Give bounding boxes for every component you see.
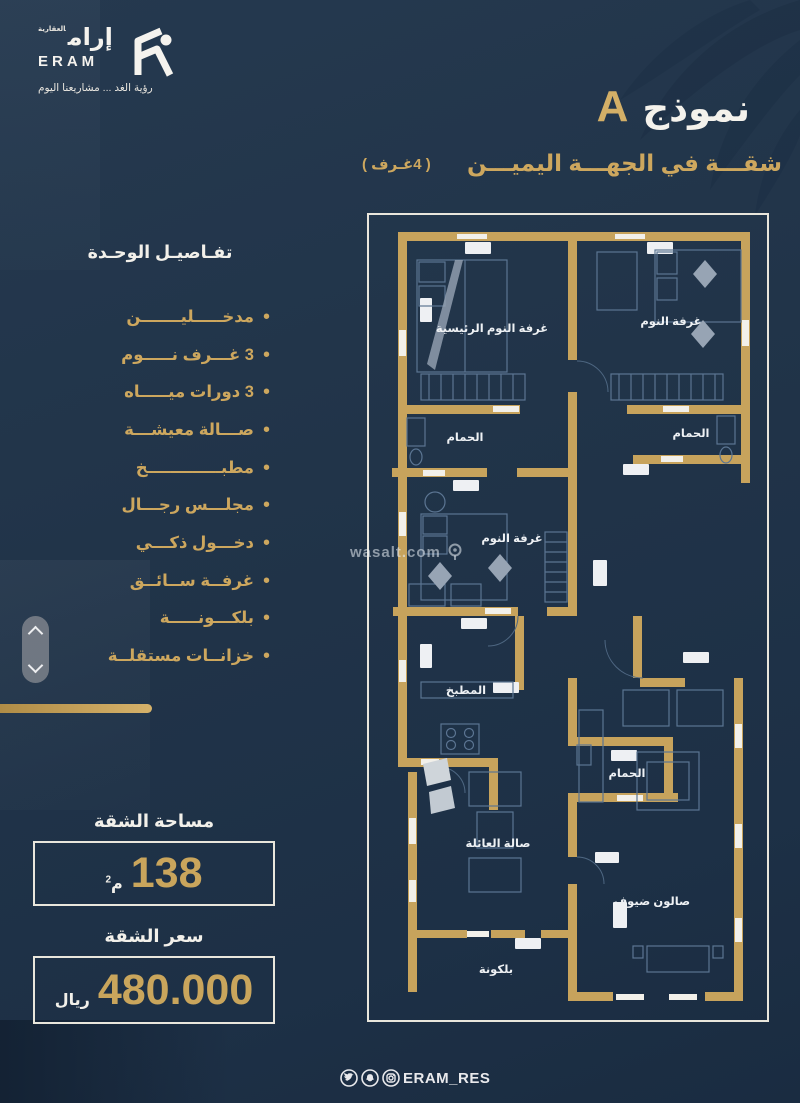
- price-box: ريال 480.000: [33, 956, 275, 1024]
- location-pin-icon: [447, 543, 463, 561]
- subtitle-text: شقـــة في الجهـــة اليميـــن: [467, 150, 782, 177]
- bullet-icon: •: [263, 608, 270, 628]
- details-list: •مدخـــــليـــــــن •3 غـــرف نـــــوم •…: [20, 298, 270, 675]
- background-shadow-bottom-left: [0, 1020, 230, 1103]
- list-item: •مدخـــــليـــــــن: [20, 298, 270, 336]
- eram-monogram-icon: [129, 26, 177, 78]
- area-value: 138: [131, 852, 203, 895]
- bullet-icon: •: [263, 646, 270, 666]
- bullet-icon: •: [263, 458, 270, 478]
- floorplan-svg: غرفة النوم الرئيسية غرفة النوم الحمام ال…: [365, 212, 785, 1024]
- brand-logo: إرامالعقارية ERAM رؤية الغد ... مشاريعنا…: [38, 26, 188, 94]
- bullet-icon: •: [263, 533, 270, 553]
- list-item: •3 غـــرف نـــــوم: [20, 336, 270, 374]
- room-label-guest-salon: صالون ضيوف: [614, 896, 690, 909]
- area-label: مساحة الشقة: [33, 811, 275, 832]
- scroll-widget[interactable]: [22, 616, 49, 683]
- room-label-family-hall: صالة العائلة: [466, 838, 531, 850]
- floorplan-walls: [392, 232, 750, 1001]
- list-item: •بلكـــونـــــة: [20, 600, 270, 638]
- subtitle-rooms-note: ( 4غـرف ): [362, 155, 431, 173]
- bullet-icon: •: [263, 307, 270, 327]
- list-item: •صـــالة معيشـــة: [20, 411, 270, 449]
- flyer-page: إرامالعقارية ERAM رؤية الغد ... مشاريعنا…: [0, 0, 800, 1103]
- floorplan: غرفة النوم الرئيسية غرفة النوم الحمام ال…: [365, 212, 785, 1024]
- area-box: 2م 138: [33, 841, 275, 906]
- bullet-icon: •: [263, 495, 270, 515]
- room-label-bathroom-2: الحمام: [672, 428, 709, 440]
- room-label-master-bedroom: غرفة النوم الرئيسية: [436, 323, 548, 336]
- scroll-up-icon[interactable]: [28, 626, 44, 642]
- room-label-bathroom-1: الحمام: [446, 432, 483, 444]
- gold-divider: [0, 704, 152, 713]
- page-subtitle: شقـــة في الجهـــة اليميـــن ( 4غـرف ): [362, 150, 782, 177]
- logo-arabic-tag: العقارية: [38, 26, 66, 33]
- bullet-icon: •: [263, 571, 270, 591]
- twitter-icon: [340, 1069, 358, 1087]
- area-unit: 2م: [105, 874, 122, 894]
- watermark-text: wasalt.com: [350, 544, 441, 561]
- title-model-letter: A: [597, 82, 629, 132]
- watermark: wasalt.com: [350, 543, 463, 561]
- room-label-kitchen: المطبخ: [446, 685, 486, 697]
- instagram-icon: [382, 1069, 400, 1087]
- room-label-balcony: بلكونة: [479, 964, 513, 977]
- room-label-bathroom-3: الحمام: [608, 768, 645, 780]
- list-item: •مطبـــــــــــــخ: [20, 449, 270, 487]
- price-label: سعر الشقة: [33, 926, 275, 947]
- list-item: •خزانــات مستقلــة: [20, 637, 270, 675]
- room-label-bedroom-2: غرفة النوم: [640, 316, 701, 329]
- price-unit: ريال: [55, 990, 90, 1010]
- social-footer: ERAM_RES: [340, 1069, 492, 1087]
- list-item: •دخـــول ذكـــي: [20, 524, 270, 562]
- snapchat-icon: [361, 1069, 379, 1087]
- bullet-icon: •: [263, 345, 270, 365]
- social-handle: ERAM_RES: [403, 1070, 490, 1087]
- logo-english: ERAM: [38, 53, 113, 70]
- price-value: 480.000: [98, 969, 253, 1012]
- bullet-icon: •: [263, 382, 270, 402]
- scroll-down-icon[interactable]: [28, 658, 44, 674]
- logo-arabic: إرامالعقارية: [38, 26, 113, 50]
- list-item: •مجلـــس رجـــال: [20, 486, 270, 524]
- bullet-icon: •: [263, 420, 270, 440]
- page-title: نموذج A: [597, 82, 750, 132]
- room-label-bedroom-3: غرفة النوم: [481, 533, 542, 546]
- brand-tagline: رؤية الغد ... مشاريعنا اليوم: [38, 82, 188, 94]
- list-item: •3 دورات ميـــــاه: [20, 373, 270, 411]
- list-item: •غرفــة ســائــق: [20, 562, 270, 600]
- title-arabic: نموذج: [642, 87, 750, 130]
- details-heading: تفـاصيـل الوحـدة: [60, 242, 260, 263]
- dimension-tags: [420, 242, 709, 949]
